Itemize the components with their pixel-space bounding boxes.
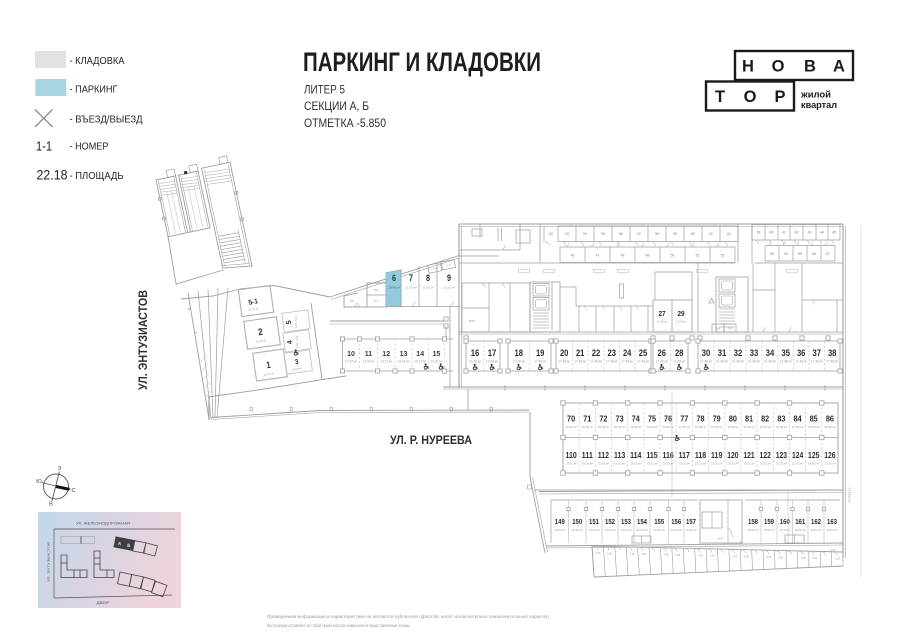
svg-text:51: 51 [696, 254, 700, 258]
svg-text:15.00 м²: 15.00 м² [826, 528, 837, 532]
svg-text:- НОМЕР: - НОМЕР [70, 141, 109, 153]
svg-text:С: С [72, 488, 76, 494]
svg-text:15.02 м²: 15.02 м² [588, 528, 599, 532]
svg-text:14.23 м²: 14.23 м² [345, 360, 357, 364]
svg-text:71: 71 [583, 414, 591, 424]
svg-text:15.00 м²: 15.00 м² [747, 528, 758, 532]
svg-text:22: 22 [592, 348, 601, 358]
svg-text:16.08 м²: 16.08 м² [614, 425, 625, 429]
svg-text:16: 16 [471, 348, 480, 358]
svg-text:84: 84 [794, 414, 802, 424]
svg-text:74: 74 [632, 414, 640, 424]
svg-text:17.48 м²: 17.48 м² [574, 360, 586, 364]
svg-text:В: В [804, 58, 816, 76]
svg-text:5.05: 5.05 [676, 554, 681, 557]
svg-text:157: 157 [686, 517, 696, 526]
svg-text:16.08 м²: 16.08 м² [824, 425, 835, 429]
svg-text:15.00 м²: 15.00 м² [763, 528, 774, 532]
svg-text:15.02 м²: 15.02 м² [620, 528, 631, 532]
svg-text:62: 62 [727, 232, 731, 236]
svg-text:МОП: МОП [469, 319, 475, 323]
svg-text:15.02 м²: 15.02 м² [604, 528, 615, 532]
svg-text:154: 154 [637, 517, 648, 526]
svg-text:38: 38 [828, 348, 837, 358]
svg-text:квартал: квартал [801, 100, 837, 111]
svg-text:23: 23 [608, 348, 617, 358]
svg-text:21.05 м²: 21.05 м² [405, 286, 416, 290]
svg-text:5-5: 5-5 [350, 299, 354, 303]
svg-text:52: 52 [721, 254, 725, 258]
svg-text:Т: Т [715, 88, 725, 106]
svg-text:65: 65 [798, 252, 802, 256]
svg-text:117: 117 [679, 450, 691, 460]
svg-text:10: 10 [347, 351, 355, 358]
svg-text:115: 115 [646, 450, 658, 460]
svg-text:114: 114 [630, 450, 642, 460]
svg-text:80: 80 [729, 414, 737, 424]
svg-text:118: 118 [695, 450, 707, 460]
svg-text:15.02 м²: 15.02 м² [695, 462, 706, 466]
svg-text:73: 73 [616, 414, 624, 424]
svg-text:А: А [833, 58, 845, 76]
svg-text:УЛ. Р. НУРЕЕВА: УЛ. Р. НУРЕЕВА [390, 433, 472, 447]
svg-text:16.08 м²: 16.08 м² [598, 425, 609, 429]
svg-text:5.05: 5.05 [607, 552, 612, 555]
svg-text:16.08 м²: 16.08 м² [727, 425, 738, 429]
svg-text:12: 12 [382, 351, 390, 358]
svg-text:48: 48 [621, 254, 625, 258]
svg-text:20: 20 [560, 348, 569, 358]
svg-text:40: 40 [770, 231, 774, 235]
svg-text:149: 149 [555, 517, 565, 526]
svg-text:16.08 м²: 16.08 м² [565, 425, 576, 429]
svg-text:17.48 м²: 17.48 м² [469, 360, 481, 364]
svg-text:15.02 м²: 15.02 м² [759, 462, 770, 466]
svg-text:24: 24 [623, 348, 632, 358]
svg-text:15.02 м²: 15.02 м² [743, 462, 754, 466]
svg-text:15.02 м²: 15.02 м² [636, 528, 647, 532]
svg-text:14: 14 [416, 351, 424, 358]
svg-text:17.48 м²: 17.48 м² [811, 360, 823, 364]
svg-text:76: 76 [664, 414, 672, 424]
svg-text:5.05: 5.05 [778, 556, 783, 559]
svg-text:30: 30 [702, 348, 711, 358]
svg-text:112: 112 [598, 450, 610, 460]
svg-text:29: 29 [677, 309, 684, 318]
svg-text:17.48 м²: 17.48 м² [716, 360, 728, 364]
svg-text:5.05: 5.05 [630, 553, 635, 556]
svg-text:СЕКЦИИ А, Б: СЕКЦИИ А, Б [304, 99, 369, 113]
svg-text:16.08 м²: 16.08 м² [695, 425, 706, 429]
svg-text:Приведенная информация и харак: Приведенная информация и характеристики … [267, 613, 550, 620]
svg-text:41: 41 [782, 231, 786, 235]
svg-text:5-7: 5-7 [374, 299, 378, 303]
svg-text:17: 17 [488, 348, 497, 358]
svg-text:45: 45 [832, 231, 836, 235]
svg-text:Н: Н [742, 58, 754, 76]
svg-text:15.02 м²: 15.02 м² [824, 462, 835, 466]
svg-text:5.05: 5.05 [698, 555, 703, 558]
svg-text:6: 6 [392, 273, 396, 283]
svg-text:36: 36 [797, 348, 806, 358]
svg-text:124: 124 [792, 450, 804, 460]
svg-text:15.02 м²: 15.02 м² [630, 462, 641, 466]
svg-text:1-1: 1-1 [36, 139, 52, 154]
svg-text:4.08 - 5.22: 4.08 - 5.22 [296, 335, 299, 348]
svg-text:17.48 м²: 17.48 м² [732, 360, 744, 364]
svg-text:16.08 м²: 16.08 м² [743, 425, 754, 429]
svg-text:119: 119 [711, 450, 723, 460]
svg-text:15.02 м²: 15.02 м² [571, 528, 582, 532]
svg-text:17.48 м²: 17.48 м² [656, 360, 668, 364]
svg-text:17.48 м²: 17.48 м² [826, 360, 838, 364]
svg-text:15.02 м²: 15.02 м² [614, 462, 625, 466]
svg-text:46: 46 [571, 254, 575, 258]
svg-text:156: 156 [671, 517, 681, 526]
svg-text:110: 110 [565, 450, 577, 460]
svg-text:В: В [49, 502, 53, 508]
svg-text:85: 85 [810, 414, 818, 424]
svg-text:17.48 м²: 17.48 м² [534, 360, 546, 364]
svg-text:162: 162 [811, 517, 821, 526]
svg-text:152: 152 [605, 517, 615, 526]
svg-text:50: 50 [671, 254, 675, 258]
svg-text:32: 32 [734, 348, 743, 358]
svg-text:5.05: 5.05 [710, 555, 715, 558]
svg-text:17.48 м²: 17.48 м² [606, 360, 618, 364]
svg-text:163: 163 [827, 517, 837, 526]
svg-text:16.08 м²: 16.08 м² [711, 425, 722, 429]
svg-text:57: 57 [637, 232, 641, 236]
svg-text:43: 43 [808, 231, 812, 235]
svg-text:17.48 м²: 17.48 м² [558, 360, 570, 364]
svg-text:49: 49 [646, 254, 650, 258]
svg-text:18.48 м²: 18.48 м² [388, 286, 399, 290]
svg-text:- ПЛОЩАДЬ: - ПЛОЩАДЬ [70, 170, 124, 182]
svg-text:42: 42 [795, 231, 799, 235]
svg-text:ЛИТЕР 5: ЛИТЕР 5 [304, 83, 345, 97]
svg-text:7: 7 [409, 273, 413, 283]
svg-text:37: 37 [813, 348, 822, 358]
svg-text:4.08 - 5.22: 4.08 - 5.22 [295, 315, 298, 328]
svg-text:67: 67 [826, 252, 830, 256]
svg-text:5.05: 5.05 [767, 556, 772, 559]
svg-text:Застройщик оставляет за собой: Застройщик оставляет за собой право внос… [267, 622, 410, 629]
svg-text:17.48 м²: 17.48 м² [748, 360, 760, 364]
svg-text:54: 54 [583, 232, 587, 236]
svg-text:14.23 м²: 14.23 м² [430, 360, 442, 364]
svg-text:13.06 м²: 13.06 м² [676, 320, 687, 324]
svg-text:3.05: 3.05 [831, 549, 836, 552]
svg-text:15.02 м²: 15.02 м² [679, 462, 690, 466]
svg-text:Р: Р [774, 88, 785, 106]
svg-text:14.23 м²: 14.23 м² [397, 360, 409, 364]
svg-text:5-6: 5-6 [374, 288, 378, 292]
svg-text:17.48 м²: 17.48 м² [780, 360, 792, 364]
svg-text:15.02 м²: 15.02 м² [792, 462, 803, 466]
svg-text:О: О [772, 58, 785, 76]
svg-text:15.02 м²: 15.02 м² [727, 462, 738, 466]
svg-text:15.02 м²: 15.02 м² [776, 462, 787, 466]
svg-text:59: 59 [673, 232, 677, 236]
svg-text:17.48 м²: 17.48 м² [637, 360, 649, 364]
svg-text:21: 21 [576, 348, 585, 358]
svg-text:151: 151 [589, 517, 599, 526]
svg-text:- ВЪЕЗД/ВЫЕЗД: - ВЪЕЗД/ВЫЕЗД [70, 113, 143, 125]
svg-text:15.02 м²: 15.02 м² [554, 528, 565, 532]
svg-text:113: 113 [614, 450, 626, 460]
svg-text:161: 161 [795, 517, 805, 526]
svg-text:15.02 м²: 15.02 м² [565, 462, 576, 466]
svg-text:15.02 м²: 15.02 м² [670, 528, 681, 532]
svg-text:15.02 м²: 15.02 м² [685, 528, 696, 532]
svg-text:34: 34 [766, 348, 775, 358]
svg-text:17.48 м²: 17.48 м² [486, 360, 498, 364]
svg-text:75: 75 [648, 414, 656, 424]
svg-text:УЛ. ЭНТУЗИАСТОВ: УЛ. ЭНТУЗИАСТОВ [47, 542, 51, 582]
svg-text:15.02 м²: 15.02 м² [646, 462, 657, 466]
svg-text:ПАРКИНГ И КЛАДОВКИ: ПАРКИНГ И КЛАДОВКИ [303, 47, 541, 77]
svg-text:УЛ. ЖЕЛЕЗНОДОРОЖНАЯ: УЛ. ЖЕЛЕЗНОДОРОЖНАЯ [76, 522, 131, 526]
svg-text:21.05 м²: 21.05 м² [422, 286, 433, 290]
svg-text:5.05: 5.05 [664, 554, 669, 557]
svg-text:18: 18 [515, 348, 524, 358]
svg-text:16.08 м²: 16.08 м² [776, 425, 787, 429]
svg-text:56: 56 [619, 232, 623, 236]
svg-text:9: 9 [447, 273, 451, 283]
svg-text:53: 53 [565, 232, 569, 236]
svg-text:126: 126 [824, 450, 836, 460]
svg-text:83: 83 [777, 414, 785, 424]
svg-text:33: 33 [750, 348, 759, 358]
svg-text:ОТМЕТКА -5.850: ОТМЕТКА -5.850 [304, 116, 386, 130]
svg-text:16.08 м²: 16.08 м² [759, 425, 770, 429]
svg-text:15.00 м²: 15.00 м² [779, 528, 790, 532]
svg-text:35: 35 [782, 348, 791, 358]
svg-text:63: 63 [770, 252, 774, 256]
svg-text:16.08 м²: 16.08 м² [792, 425, 803, 429]
svg-text:ДВОР: ДВОР [97, 600, 110, 605]
svg-text:5.05: 5.05 [812, 557, 817, 560]
svg-text:79: 79 [713, 414, 721, 424]
svg-text:81: 81 [745, 414, 753, 424]
svg-text:122: 122 [760, 450, 772, 460]
svg-text:125: 125 [808, 450, 820, 460]
svg-text:16.08 м²: 16.08 м² [679, 425, 690, 429]
svg-text:14.23 м²: 14.23 м² [414, 360, 426, 364]
svg-text:5.05: 5.05 [596, 552, 601, 555]
svg-text:150: 150 [572, 517, 582, 526]
svg-text:15: 15 [433, 351, 441, 358]
svg-text:5-6: 5-6 [728, 328, 732, 331]
svg-text:5-5: 5-5 [716, 328, 720, 331]
svg-text:11: 11 [365, 351, 373, 358]
svg-text:17.48 м²: 17.48 м² [700, 360, 712, 364]
svg-text:17.48 м²: 17.48 м² [621, 360, 633, 364]
svg-text:31: 31 [718, 348, 727, 358]
svg-text:- ПАРКИНГ: - ПАРКИНГ [70, 84, 118, 96]
svg-text:64: 64 [784, 252, 788, 256]
svg-text:52: 52 [549, 232, 553, 236]
svg-text:17.48 м²: 17.48 м² [513, 360, 525, 364]
svg-text:66: 66 [812, 252, 816, 256]
svg-text:жилой: жилой [800, 90, 831, 101]
svg-text:121: 121 [743, 450, 755, 460]
svg-text:14.23 м²: 14.23 м² [380, 360, 392, 364]
svg-text:15.02 м²: 15.02 м² [808, 462, 819, 466]
svg-text:13: 13 [400, 351, 408, 358]
svg-text:26: 26 [658, 348, 667, 358]
svg-text:15.00 м²: 15.00 м² [794, 528, 805, 532]
svg-text:28: 28 [675, 348, 684, 358]
svg-text:58: 58 [655, 232, 659, 236]
svg-text:78: 78 [696, 414, 704, 424]
svg-text:21.05 м²: 21.05 м² [443, 286, 454, 290]
svg-text:44: 44 [820, 231, 824, 235]
svg-text:22.18: 22.18 [37, 166, 68, 182]
svg-text:17.48 м²: 17.48 м² [764, 360, 776, 364]
svg-text:86: 86 [826, 414, 834, 424]
svg-text:5.05: 5.05 [744, 556, 749, 559]
svg-text:Ю: Ю [36, 479, 42, 485]
svg-text:16.08 м²: 16.08 м² [808, 425, 819, 429]
svg-text:УЛ. ЭНТУЗИАСТОВ: УЛ. ЭНТУЗИАСТОВ [136, 290, 150, 390]
svg-text:15.02 м²: 15.02 м² [582, 462, 593, 466]
svg-text:5.05: 5.05 [835, 558, 840, 561]
svg-text:70: 70 [567, 414, 575, 424]
svg-text:72: 72 [599, 414, 607, 424]
svg-text:16.08 м²: 16.08 м² [630, 425, 641, 429]
svg-text:5.05: 5.05 [641, 553, 646, 556]
svg-text:55: 55 [601, 232, 605, 236]
svg-text:15.00 м²: 15.00 м² [810, 528, 821, 532]
svg-text:111: 111 [582, 450, 594, 460]
svg-text:- КЛАДОВКА: - КЛАДОВКА [70, 55, 125, 67]
svg-text:77: 77 [680, 414, 688, 424]
svg-text:8: 8 [426, 273, 430, 283]
svg-text:27: 27 [658, 309, 665, 318]
svg-text:123: 123 [776, 450, 788, 460]
svg-text:16.08 м²: 16.08 м² [646, 425, 657, 429]
svg-text:5.05: 5.05 [733, 555, 738, 558]
svg-text:МОП: МОП [717, 538, 723, 541]
svg-text:14.23 м²: 14.23 м² [362, 360, 374, 364]
svg-text:60: 60 [691, 232, 695, 236]
svg-text:61: 61 [709, 232, 713, 236]
svg-text:15.02 м²: 15.02 м² [653, 528, 664, 532]
svg-text:15.02 м²: 15.02 м² [711, 462, 722, 466]
svg-text:159: 159 [764, 517, 774, 526]
svg-text:82: 82 [761, 414, 769, 424]
svg-text:17.48 м²: 17.48 м² [590, 360, 602, 364]
svg-text:5.05: 5.05 [801, 557, 806, 560]
svg-text:17.48 м²: 17.48 м² [795, 360, 807, 364]
svg-text:ПРОЕЗД 4.5: ПРОЕЗД 4.5 [848, 487, 852, 502]
svg-text:19: 19 [536, 348, 545, 358]
svg-text:153: 153 [621, 517, 631, 526]
svg-text:120: 120 [727, 450, 739, 460]
svg-text:17.48 м²: 17.48 м² [673, 360, 685, 364]
svg-text:15.02 м²: 15.02 м² [598, 462, 609, 466]
svg-text:158: 158 [748, 517, 758, 526]
svg-text:25: 25 [639, 348, 648, 358]
svg-text:47: 47 [596, 254, 600, 258]
svg-text:16.08 м²: 16.08 м² [582, 425, 593, 429]
svg-text:155: 155 [654, 517, 664, 526]
svg-text:11.96 м²: 11.96 м² [657, 320, 667, 324]
svg-text:О: О [744, 88, 757, 106]
svg-text:39: 39 [757, 231, 761, 235]
